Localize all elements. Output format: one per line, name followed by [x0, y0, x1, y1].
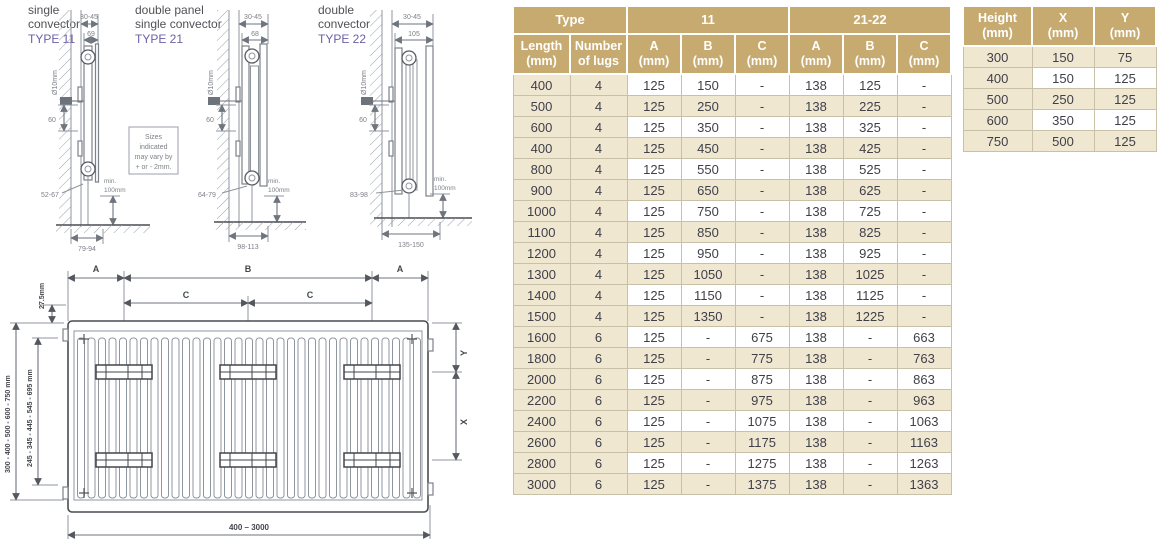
- table-cell: 6: [570, 453, 627, 474]
- table-cell: 125: [627, 180, 681, 201]
- table-cell: 250: [681, 96, 735, 117]
- table-cell: -: [735, 264, 789, 285]
- dim-a-right: A: [397, 264, 404, 274]
- table-cell: -: [843, 348, 897, 369]
- table-cell: 725: [843, 201, 897, 222]
- table-cell: 525: [843, 159, 897, 180]
- table-cell: 138: [789, 411, 843, 432]
- type-label: TYPE 22: [318, 32, 366, 46]
- fin: [393, 338, 400, 498]
- table-cell: 863: [897, 369, 951, 390]
- table-cell: -: [735, 222, 789, 243]
- table-cell: 125: [627, 285, 681, 306]
- col-header-c-11: C (mm): [735, 34, 789, 74]
- fin: [319, 338, 326, 498]
- bracket: [96, 453, 152, 467]
- table-cell: 1275: [735, 453, 789, 474]
- table-cell: -: [843, 327, 897, 348]
- floor-section: [214, 222, 306, 230]
- dim-c-left: C: [183, 290, 190, 300]
- table-cell: -: [897, 222, 951, 243]
- table-cell: 400: [963, 68, 1032, 89]
- table-cell: 125: [627, 201, 681, 222]
- table-cell: 1000: [513, 201, 570, 222]
- col-group-11: 11: [627, 6, 789, 34]
- table-cell: 500: [1032, 131, 1094, 152]
- bracket: [344, 365, 400, 379]
- diagram-title: single convector: [135, 17, 222, 31]
- table-cell: -: [897, 306, 951, 327]
- table-cell: 1025: [843, 264, 897, 285]
- table-cell: 875: [735, 369, 789, 390]
- dim-pipe-diameter: Ø10mm: [208, 70, 215, 95]
- valve: [208, 97, 220, 105]
- table-cell: 1063: [897, 411, 951, 432]
- table-cell: 125: [627, 369, 681, 390]
- table-cell: -: [735, 243, 789, 264]
- table-cell: 825: [843, 222, 897, 243]
- dim-overall-depth: 79-94: [78, 246, 96, 253]
- table-row: 26006125-1175138-1163: [513, 432, 951, 453]
- tolerance-note: Sizes indicated may vary by + or - 2mm.: [129, 127, 178, 174]
- table-cell: 138: [789, 180, 843, 201]
- table-cell: -: [897, 117, 951, 138]
- table-row: 8004125550-138525-: [513, 159, 951, 180]
- table-cell: 2000: [513, 369, 570, 390]
- table-cell: -: [735, 285, 789, 306]
- fin: [288, 338, 295, 498]
- fin: [78, 338, 85, 498]
- height-xy-table: Height (mm) X (mm) Y (mm) 30015075400150…: [962, 5, 1157, 152]
- fin: [225, 338, 232, 498]
- table-cell: 1800: [513, 348, 570, 369]
- table-cell: 4: [570, 180, 627, 201]
- table-cell: 125: [627, 411, 681, 432]
- dimension-lug-spacing: A B A: [68, 264, 428, 278]
- radiator-spec-sheet: { "palette": { "header_bg": "#c7aa70", "…: [0, 0, 1158, 547]
- fin: [172, 338, 179, 498]
- table-cell: -: [735, 96, 789, 117]
- table-cell: 450: [681, 138, 735, 159]
- col-header-a-2122: A (mm): [789, 34, 843, 74]
- bracket: [220, 453, 276, 467]
- table-cell: -: [735, 201, 789, 222]
- table-cell: 4: [570, 96, 627, 117]
- table-cell: -: [681, 474, 735, 495]
- min-clearance-label: min.: [268, 178, 280, 185]
- table-cell: 6: [570, 474, 627, 495]
- table-cell: 125: [627, 74, 681, 96]
- table-row: 5004125250-138225-: [513, 96, 951, 117]
- table-cell: -: [681, 432, 735, 453]
- table-cell: 425: [843, 138, 897, 159]
- type-label: TYPE 21: [135, 32, 183, 46]
- dim-wall-gap: 30-45: [244, 14, 262, 21]
- fin: [403, 338, 410, 498]
- table-cell: 1075: [735, 411, 789, 432]
- table-cell: 1225: [843, 306, 897, 327]
- table-cell: 6: [570, 327, 627, 348]
- table-cell: 1263: [897, 453, 951, 474]
- table-row: 500250125: [963, 89, 1156, 110]
- table-cell: 1163: [897, 432, 951, 453]
- table-cell: 600: [513, 117, 570, 138]
- table-cell: 600: [963, 110, 1032, 131]
- table-cell: 138: [789, 96, 843, 117]
- table-cell: 4: [570, 159, 627, 180]
- table-cell: 138: [789, 243, 843, 264]
- table-cell: 125: [1094, 110, 1156, 131]
- side-section-diagrams: single convector TYPE 11 30-45 69 Ø10mm …: [0, 0, 510, 258]
- table-row: 10004125750-138725-: [513, 201, 951, 222]
- table-cell: 125: [627, 159, 681, 180]
- table-cell: -: [681, 390, 735, 411]
- col-header-height: Height (mm): [963, 6, 1032, 46]
- table-cell: 4: [570, 201, 627, 222]
- min-clearance-label: min.: [434, 176, 446, 183]
- table-row: 30006125-1375138-1363: [513, 474, 951, 495]
- table-cell: 125: [627, 222, 681, 243]
- table-cell: 4: [570, 306, 627, 327]
- table-cell: 138: [789, 201, 843, 222]
- table-cell: 1350: [681, 306, 735, 327]
- fin: [361, 338, 368, 498]
- fin: [414, 338, 421, 498]
- table-cell: 963: [897, 390, 951, 411]
- valve: [361, 97, 373, 105]
- dim-c-right: C: [307, 290, 314, 300]
- table-cell: 850: [681, 222, 735, 243]
- table-row: 750500125: [963, 131, 1156, 152]
- table-cell: -: [843, 369, 897, 390]
- table-row: 18006125-775138-763: [513, 348, 951, 369]
- table-cell: 2400: [513, 411, 570, 432]
- table-row: 20006125-875138-863: [513, 369, 951, 390]
- diagram-title: single: [28, 3, 60, 17]
- min-clearance-value: 100mm: [268, 187, 290, 194]
- table-cell: 138: [789, 222, 843, 243]
- fin: [204, 338, 211, 498]
- min-clearance-value: 100mm: [434, 185, 456, 192]
- table-cell: 125: [627, 474, 681, 495]
- note-line: Sizes: [145, 134, 163, 141]
- table-cell: -: [897, 96, 951, 117]
- table-cell: 138: [789, 348, 843, 369]
- table-cell: 150: [1032, 46, 1094, 68]
- table-cell: 6: [570, 390, 627, 411]
- table-cell: -: [735, 74, 789, 96]
- height-xy-table-body: 3001507540015012550025012560035012575050…: [963, 46, 1156, 152]
- fin: [109, 338, 116, 498]
- dim-overall-depth: 135-150: [398, 242, 424, 249]
- table-row: 28006125-1275138-1263: [513, 453, 951, 474]
- table-cell: 1363: [897, 474, 951, 495]
- dim-b: B: [245, 264, 252, 274]
- table-cell: 4: [570, 117, 627, 138]
- table-cell: 500: [963, 89, 1032, 110]
- table-cell: 125: [627, 432, 681, 453]
- table-cell: 400: [513, 138, 570, 159]
- table-row: 400150125: [963, 68, 1156, 89]
- wall-section: [217, 10, 239, 227]
- fin: [372, 338, 379, 498]
- table-cell: 4: [570, 222, 627, 243]
- table-cell: -: [897, 138, 951, 159]
- table-cell: 1175: [735, 432, 789, 453]
- valve: [60, 97, 72, 105]
- table-cell: 300: [963, 46, 1032, 68]
- table-cell: 125: [843, 74, 897, 96]
- table-cell: 6: [570, 369, 627, 390]
- table-row: 130041251050-1381025-: [513, 264, 951, 285]
- table-cell: 138: [789, 327, 843, 348]
- fin: [267, 338, 274, 498]
- table-cell: 125: [627, 96, 681, 117]
- table-cell: 125: [1094, 131, 1156, 152]
- col-header-b-11: B (mm): [681, 34, 735, 74]
- table-cell: 4: [570, 138, 627, 159]
- dim-depth: 69: [87, 31, 95, 38]
- table-cell: 1300: [513, 264, 570, 285]
- table-cell: 500: [513, 96, 570, 117]
- table-cell: 2200: [513, 390, 570, 411]
- table-cell: 125: [627, 327, 681, 348]
- col-header-b-2122: B (mm): [843, 34, 897, 74]
- fin: [120, 338, 127, 498]
- fin: [151, 338, 158, 498]
- table-cell: 1100: [513, 222, 570, 243]
- table-cell: -: [897, 74, 951, 96]
- fin: [130, 338, 137, 498]
- table-cell: 350: [1032, 110, 1094, 131]
- table-cell: -: [681, 327, 735, 348]
- table-cell: -: [843, 432, 897, 453]
- table-cell: 4: [570, 285, 627, 306]
- table-cell: -: [897, 201, 951, 222]
- table-cell: 138: [789, 264, 843, 285]
- table-cell: 350: [681, 117, 735, 138]
- table-cell: -: [843, 453, 897, 474]
- table-cell: 125: [627, 264, 681, 285]
- dim-pipe-centre: 52-67: [41, 192, 59, 199]
- table-cell: 150: [681, 74, 735, 96]
- table-cell: 1600: [513, 327, 570, 348]
- table-cell: 800: [513, 159, 570, 180]
- min-clearance-label: min.: [104, 178, 116, 185]
- svg-text:245 - 345 - 445 - 545 - 695 mm: 245 - 345 - 445 - 545 - 695 mm: [27, 369, 34, 467]
- table-cell: 138: [789, 159, 843, 180]
- table-cell: 325: [843, 117, 897, 138]
- diagram-type-22: double convector TYPE 22 30-45 105 Ø10mm: [318, 3, 472, 249]
- table-cell: 625: [843, 180, 897, 201]
- dim-pipe-centre: 83-98: [350, 192, 368, 199]
- table-cell: 125: [627, 348, 681, 369]
- svg-text:400 – 3000: 400 – 3000: [229, 523, 270, 532]
- table-cell: 2600: [513, 432, 570, 453]
- table-row: 6004125350-138325-: [513, 117, 951, 138]
- svg-text:Y: Y: [459, 350, 469, 356]
- table-cell: 900: [513, 180, 570, 201]
- table-cell: 125: [627, 453, 681, 474]
- table-cell: 4: [570, 243, 627, 264]
- table-cell: 138: [789, 306, 843, 327]
- svg-text:300 - 400 - 500 - 600 - 750 mm: 300 - 400 - 500 - 600 - 750 mm: [5, 375, 12, 473]
- dim-depth: 105: [408, 31, 420, 38]
- table-cell: -: [897, 243, 951, 264]
- fin: [330, 338, 337, 498]
- dim-valve-offset: 60: [48, 117, 56, 124]
- fin: [256, 338, 263, 498]
- col-header-y: Y (mm): [1094, 6, 1156, 46]
- table-row: 12004125950-138925-: [513, 243, 951, 264]
- table-cell: 1375: [735, 474, 789, 495]
- dimension-height-outer: 300 - 400 - 500 - 600 - 750 mm: [5, 323, 64, 500]
- table-cell: 925: [843, 243, 897, 264]
- table-cell: 138: [789, 474, 843, 495]
- table-cell: 663: [897, 327, 951, 348]
- dim-overall-depth: 98-113: [237, 244, 258, 251]
- table-cell: 750: [963, 131, 1032, 152]
- dimensions-table: Type 11 21-22 Length (mm) Number of lugs…: [512, 5, 952, 495]
- diagram-title: convector: [318, 17, 370, 31]
- fin: [382, 338, 389, 498]
- fin: [214, 338, 221, 498]
- dim-depth: 68: [251, 31, 259, 38]
- diagram-title: double: [318, 3, 354, 17]
- table-cell: 4: [570, 74, 627, 96]
- table-cell: 650: [681, 180, 735, 201]
- svg-text:27.5mm: 27.5mm: [39, 283, 46, 309]
- table-cell: 1050: [681, 264, 735, 285]
- table-cell: -: [897, 159, 951, 180]
- table-row: 16006125-675138-663: [513, 327, 951, 348]
- table-cell: 6: [570, 411, 627, 432]
- table-cell: 1125: [843, 285, 897, 306]
- table-cell: 3000: [513, 474, 570, 495]
- table-row: 600350125: [963, 110, 1156, 131]
- table-cell: 75: [1094, 46, 1156, 68]
- table-cell: 138: [789, 432, 843, 453]
- table-cell: 6: [570, 348, 627, 369]
- table-cell: 225: [843, 96, 897, 117]
- fin: [340, 338, 347, 498]
- radiator-section: [208, 44, 267, 222]
- table-cell: 2800: [513, 453, 570, 474]
- table-cell: 138: [789, 390, 843, 411]
- table-row: 9004125650-138625-: [513, 180, 951, 201]
- col-header-c-2122: C (mm): [897, 34, 951, 74]
- table-row: 4004125450-138425-: [513, 138, 951, 159]
- table-cell: -: [843, 411, 897, 432]
- table-cell: 1150: [681, 285, 735, 306]
- table-cell: 675: [735, 327, 789, 348]
- dim-pipe-centre: 64-79: [198, 192, 216, 199]
- bracket: [96, 365, 152, 379]
- front-view-diagram: A B A C C 27.5mm 300 - 400 - 500 - 600 -…: [0, 255, 510, 547]
- wall-section: [370, 10, 392, 227]
- table-row: 11004125850-138825-: [513, 222, 951, 243]
- table-cell: 125: [627, 390, 681, 411]
- table-cell: 250: [1032, 89, 1094, 110]
- diagram-title: convector: [28, 17, 80, 31]
- fin: [235, 338, 242, 498]
- table-cell: -: [735, 180, 789, 201]
- radiator-front: [63, 321, 433, 512]
- table-cell: -: [735, 117, 789, 138]
- fin: [183, 338, 190, 498]
- dim-wall-gap: 30-45: [403, 14, 421, 21]
- col-group-21-22: 21-22: [789, 6, 951, 34]
- note-line: indicated: [139, 144, 167, 151]
- fin: [193, 338, 200, 498]
- table-cell: -: [897, 180, 951, 201]
- wall-section: [59, 10, 81, 227]
- table-cell: 138: [789, 453, 843, 474]
- floor-section: [374, 218, 472, 226]
- table-cell: 775: [735, 348, 789, 369]
- table-cell: 138: [789, 285, 843, 306]
- table-cell: 763: [897, 348, 951, 369]
- table-cell: 125: [1094, 89, 1156, 110]
- table-cell: -: [735, 138, 789, 159]
- table-cell: -: [843, 474, 897, 495]
- table-cell: -: [681, 369, 735, 390]
- table-cell: 138: [789, 369, 843, 390]
- table-cell: 138: [789, 138, 843, 159]
- table-cell: 138: [789, 74, 843, 96]
- col-header-x: X (mm): [1032, 6, 1094, 46]
- fin: [162, 338, 169, 498]
- col-header-length: Length (mm): [513, 34, 570, 74]
- dimension-top-offset: 27.5mm: [39, 283, 66, 323]
- diagram-title: double panel: [135, 3, 204, 17]
- min-clearance-value: 100mm: [104, 187, 126, 194]
- table-cell: 1200: [513, 243, 570, 264]
- table-cell: 550: [681, 159, 735, 180]
- dim-valve-offset: 60: [206, 117, 214, 124]
- table-cell: -: [897, 285, 951, 306]
- dim-valve-offset: 60: [359, 117, 367, 124]
- table-cell: 125: [627, 243, 681, 264]
- fin: [246, 338, 253, 498]
- note-line: may vary by: [135, 154, 173, 161]
- table-cell: 4: [570, 264, 627, 285]
- table-row: 150041251350-1381225-: [513, 306, 951, 327]
- table-row: 22006125-975138-963: [513, 390, 951, 411]
- fin: [88, 338, 95, 498]
- table-cell: 1500: [513, 306, 570, 327]
- table-cell: 400: [513, 74, 570, 96]
- dimension-x: X: [432, 372, 469, 460]
- table-cell: 1400: [513, 285, 570, 306]
- table-cell: 975: [735, 390, 789, 411]
- table-cell: 138: [789, 117, 843, 138]
- table-cell: 125: [1094, 68, 1156, 89]
- table-row: 140041251150-1381125-: [513, 285, 951, 306]
- col-header-lugs: Number of lugs: [570, 34, 627, 74]
- fin: [99, 338, 106, 498]
- fin: [351, 338, 358, 498]
- fin: [141, 338, 148, 498]
- table-row: 24006125-1075138-1063: [513, 411, 951, 432]
- col-group-type: Type: [513, 6, 627, 34]
- fin: [298, 338, 305, 498]
- table-cell: -: [735, 159, 789, 180]
- fin: [309, 338, 316, 498]
- table-cell: -: [681, 453, 735, 474]
- bracket: [220, 365, 276, 379]
- note-line: + or - 2mm.: [136, 164, 172, 171]
